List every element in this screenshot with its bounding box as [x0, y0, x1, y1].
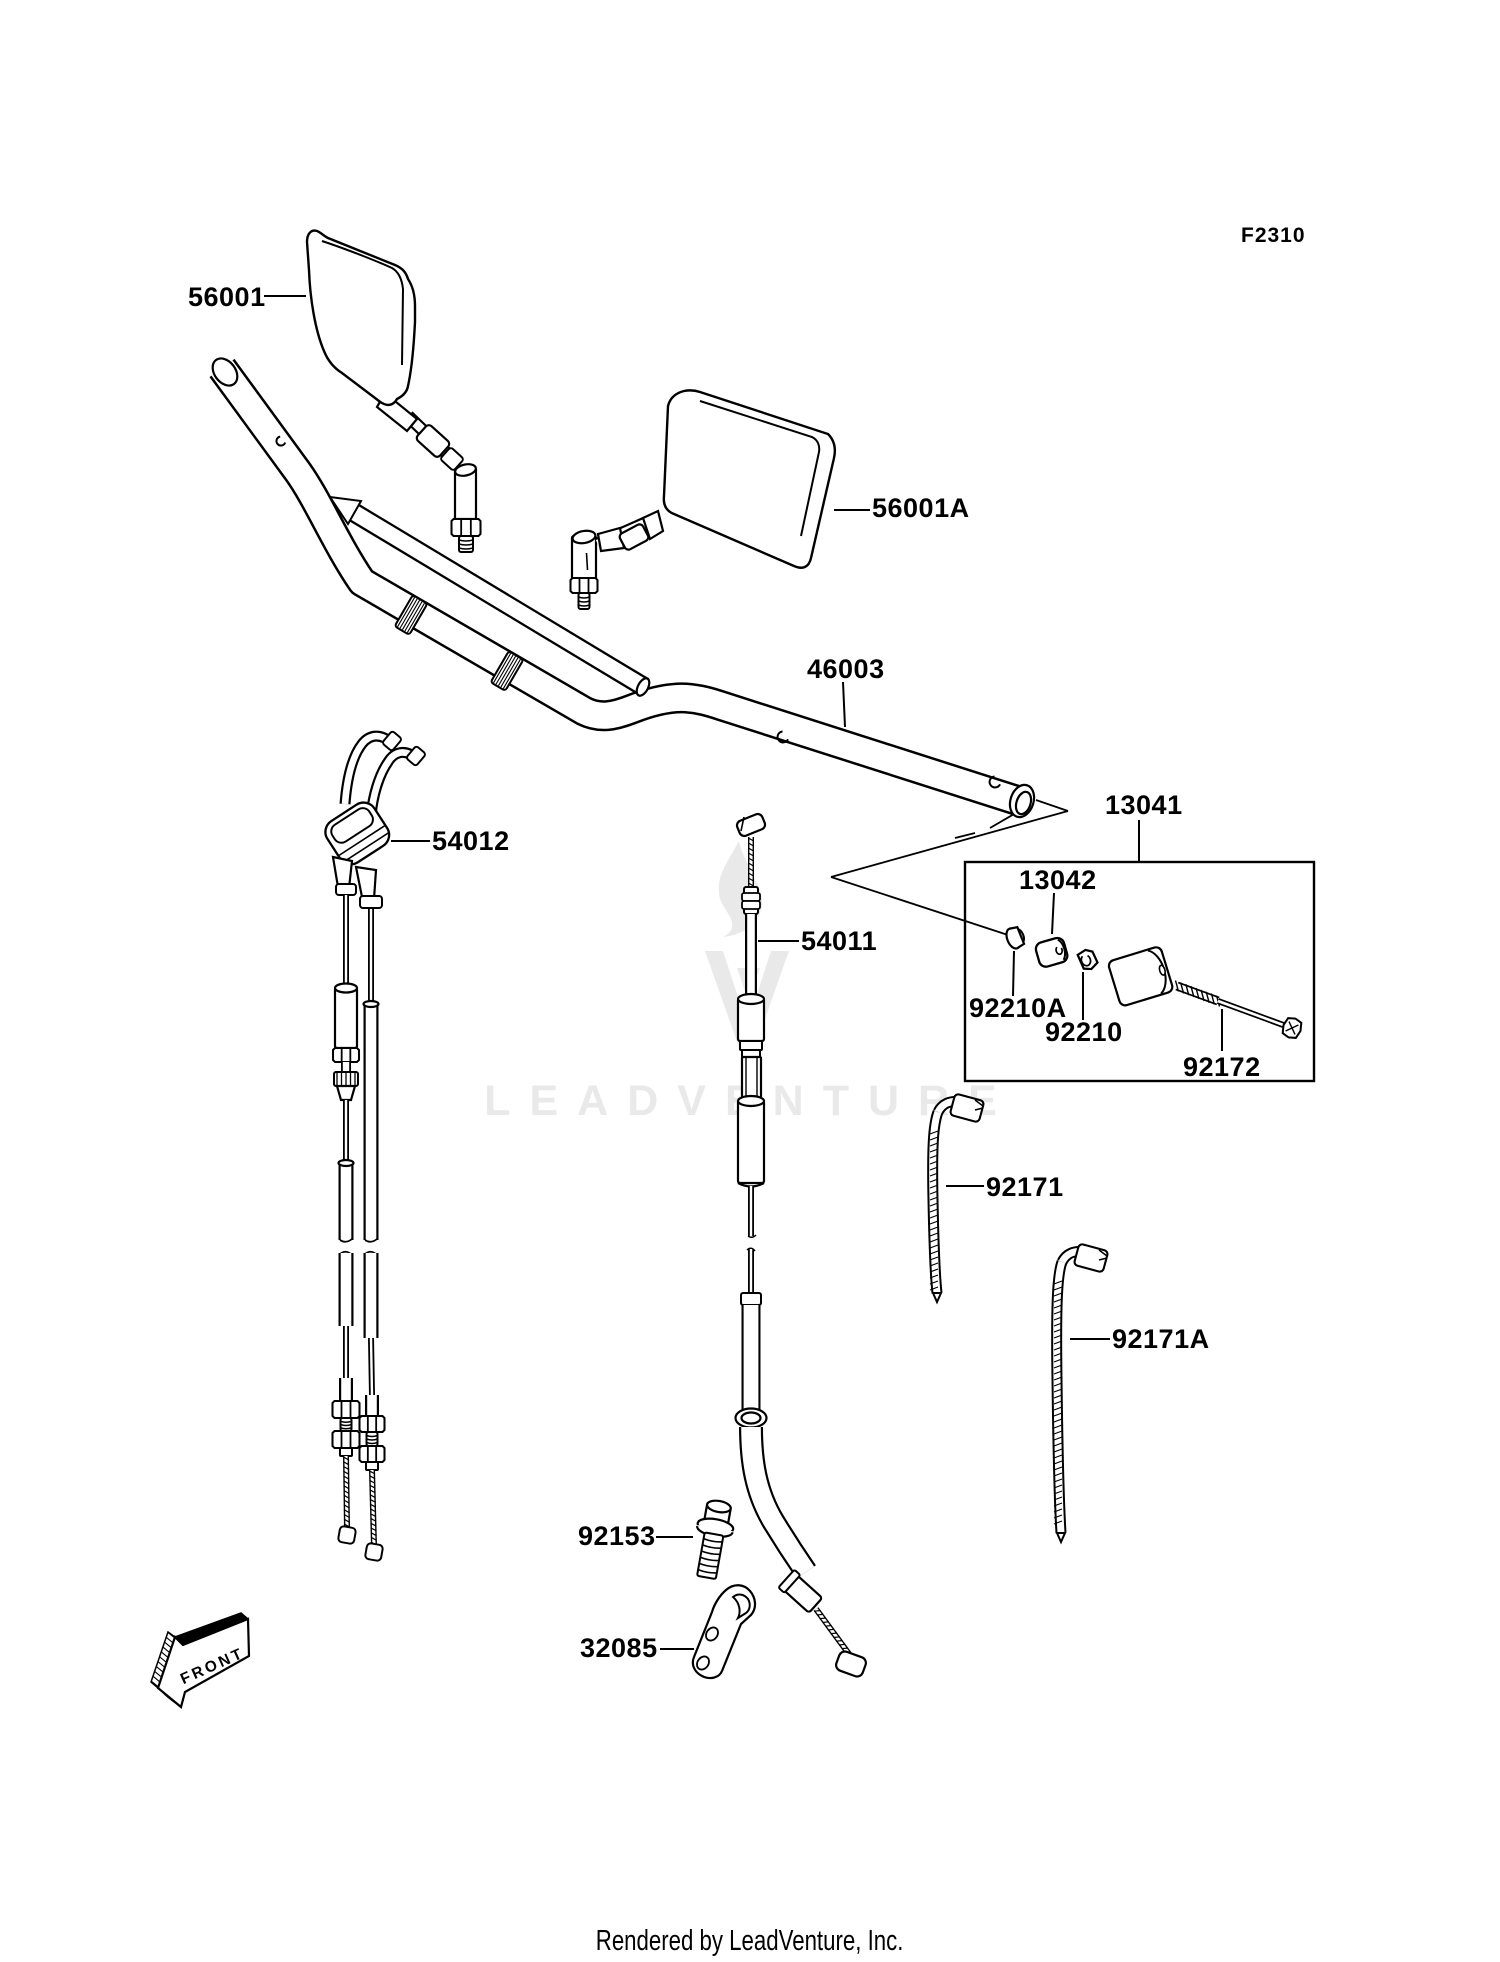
svg-text:13042: 13042 [1019, 865, 1097, 895]
svg-text:13041: 13041 [1105, 790, 1183, 820]
svg-text:92172: 92172 [1183, 1052, 1261, 1082]
svg-text:92171: 92171 [986, 1172, 1064, 1202]
svg-text:56001: 56001 [188, 282, 266, 312]
svg-text:56001A: 56001A [872, 493, 970, 523]
svg-text:46003: 46003 [807, 654, 885, 684]
svg-text:92171A: 92171A [1112, 1324, 1210, 1354]
svg-text:92153: 92153 [578, 1521, 656, 1551]
svg-text:32085: 32085 [580, 1633, 658, 1663]
svg-text:54012: 54012 [432, 826, 510, 856]
svg-text:F2310: F2310 [1241, 224, 1306, 247]
svg-text:54011: 54011 [801, 926, 877, 956]
svg-text:Rendered by LeadVenture, Inc.: Rendered by LeadVenture, Inc. [596, 1925, 904, 1956]
svg-text:92210: 92210 [1045, 1017, 1123, 1047]
